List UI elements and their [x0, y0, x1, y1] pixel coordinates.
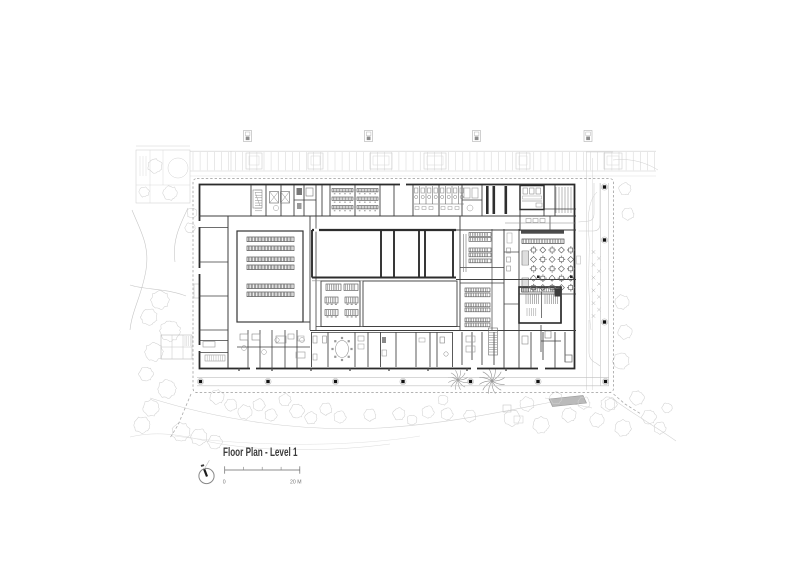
svg-text:Floor Plan - Level 1: Floor Plan - Level 1: [223, 445, 298, 459]
svg-text:20 M: 20 M: [290, 480, 302, 486]
svg-text:0: 0: [223, 480, 226, 486]
